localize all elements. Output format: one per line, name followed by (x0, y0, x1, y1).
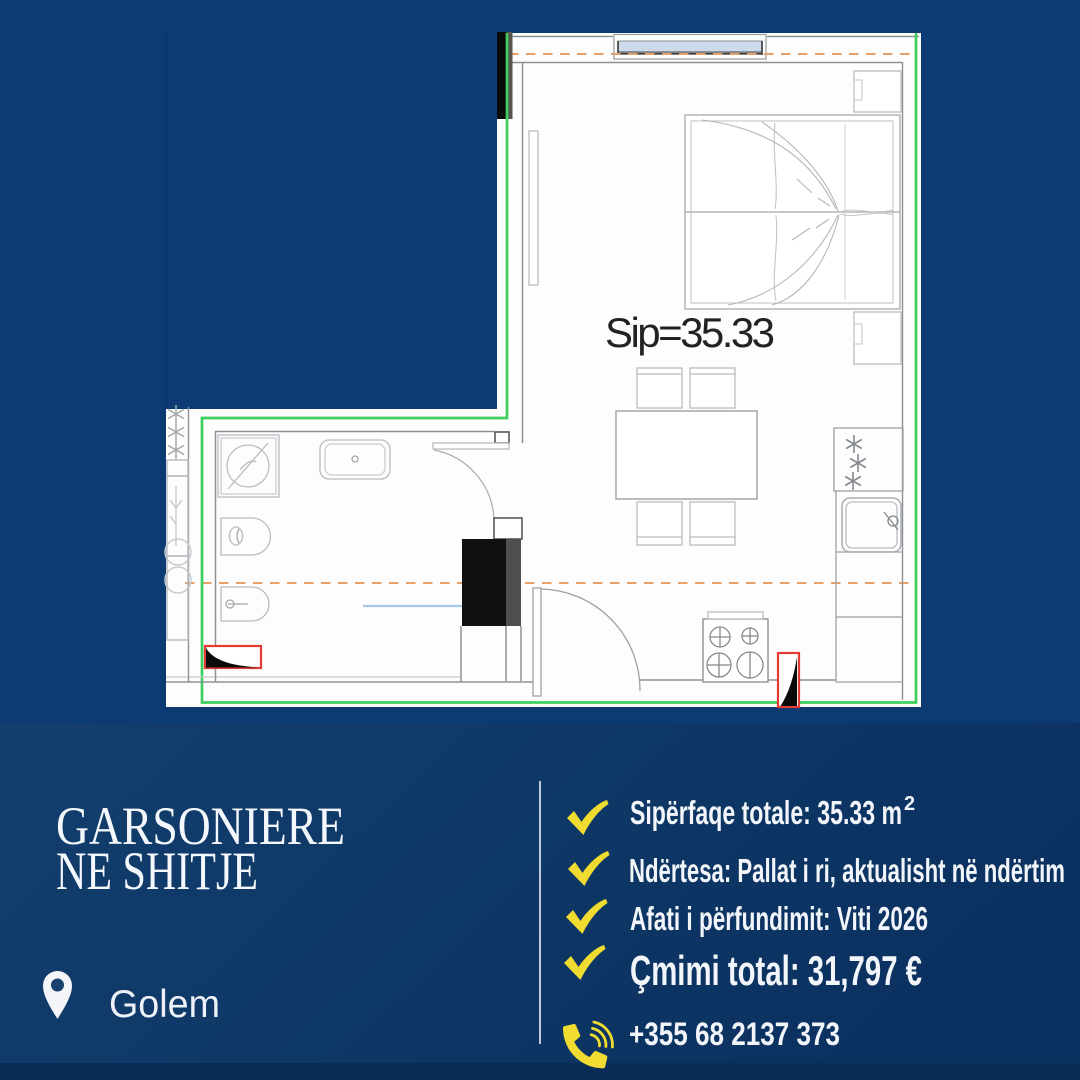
svg-text:NE SHITJE: NE SHITJE (56, 841, 258, 901)
svg-text:Afati i përfundimit: Viti 2026: Afati i përfundimit: Viti 2026 (630, 900, 928, 937)
svg-text:Sipërfaqe totale: 35.33 m: Sipërfaqe totale: 35.33 m (630, 794, 902, 831)
svg-text:Golem: Golem (109, 983, 220, 1026)
svg-text:+355 68 2137 373: +355 68 2137 373 (629, 1016, 840, 1052)
svg-text:2: 2 (904, 793, 915, 815)
svg-text:Sip=35.33: Sip=35.33 (605, 309, 775, 356)
svg-text:Ndërtesa: Pallat i ri, aktuali: Ndërtesa: Pallat i ri, aktualisht në ndë… (629, 852, 1065, 889)
svg-text:Çmimi total: 31,797 €: Çmimi total: 31,797 € (630, 947, 922, 994)
